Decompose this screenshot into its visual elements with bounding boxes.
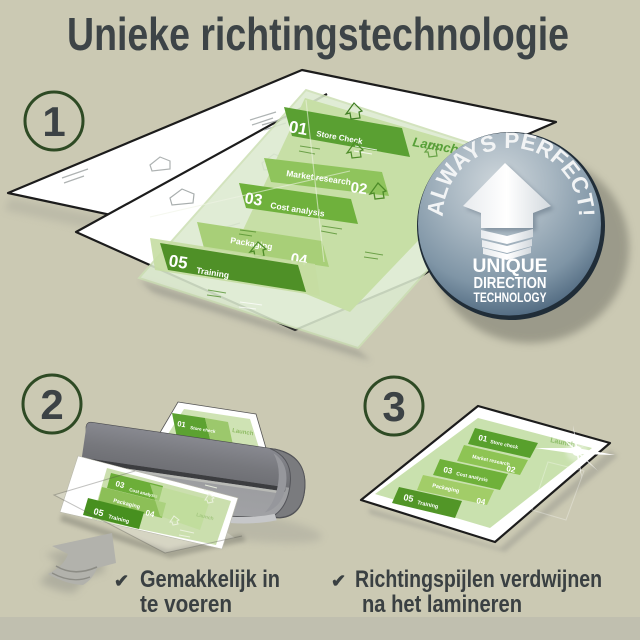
svg-text:2: 2 bbox=[40, 381, 63, 428]
svg-text:01: 01 bbox=[287, 117, 309, 139]
svg-text:Unieke richtingstechnologie: Unieke richtingstechnologie bbox=[67, 8, 569, 60]
svg-text:01: 01 bbox=[177, 419, 187, 429]
svg-text:Richtingspijlen verdwijnen: Richtingspijlen verdwijnen bbox=[355, 566, 602, 593]
svg-text:UNIQUE: UNIQUE bbox=[473, 256, 548, 277]
svg-text:te voeren: te voeren bbox=[140, 591, 232, 618]
svg-text:✔: ✔ bbox=[114, 571, 129, 591]
svg-text:05: 05 bbox=[167, 251, 189, 273]
svg-text:✔: ✔ bbox=[331, 571, 346, 591]
svg-text:02: 02 bbox=[349, 179, 368, 198]
svg-text:1: 1 bbox=[42, 98, 65, 145]
svg-text:na het lamineren: na het lamineren bbox=[362, 591, 522, 618]
svg-text:3: 3 bbox=[382, 383, 405, 430]
svg-text:TECHNOLOGY: TECHNOLOGY bbox=[474, 290, 547, 305]
svg-text:Gemakkelijk in: Gemakkelijk in bbox=[140, 566, 280, 593]
svg-text:05: 05 bbox=[403, 492, 415, 504]
